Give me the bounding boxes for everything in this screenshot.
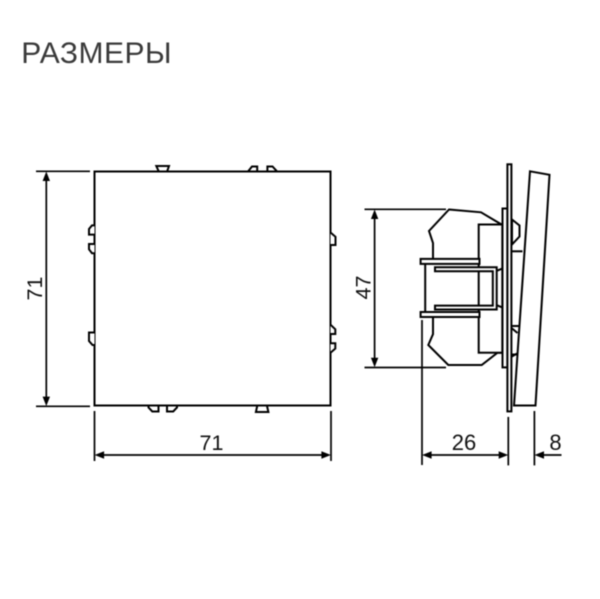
svg-text:47: 47 [352, 276, 376, 300]
svg-text:71: 71 [23, 277, 47, 301]
svg-text:26: 26 [452, 430, 476, 455]
svg-text:71: 71 [200, 431, 224, 455]
svg-text:8: 8 [549, 430, 561, 455]
